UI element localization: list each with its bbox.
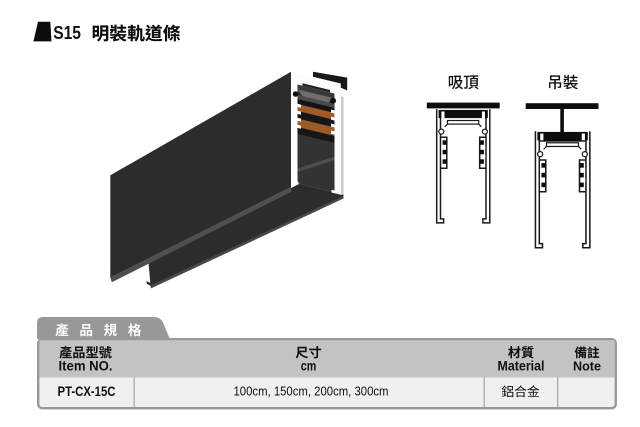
svg-text:Material: Material [498,358,545,373]
svg-text:100cm, 150cm, 200cm, 300cm: 100cm, 150cm, 200cm, 300cm [234,383,389,398]
svg-text:PT-CX-15C: PT-CX-15C [58,384,116,399]
svg-text:cm: cm [301,358,317,373]
svg-text:Note: Note [573,358,601,373]
svg-text:Item NO.: Item NO. [59,358,113,373]
svg-text:S15: S15 [53,23,81,43]
